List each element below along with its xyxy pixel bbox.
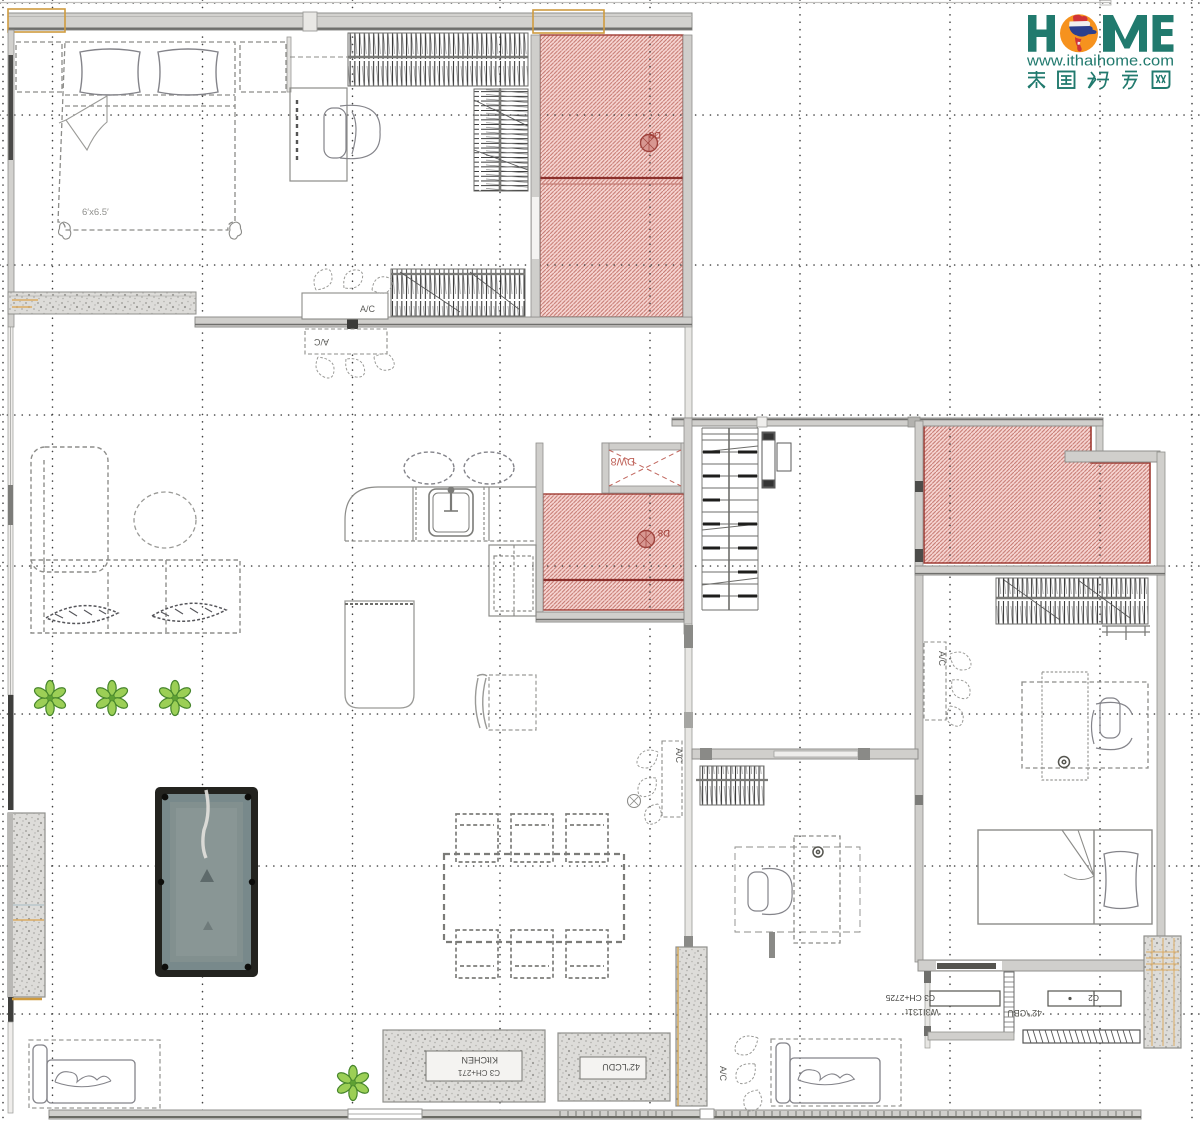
svg-text:C3 CH+2725: C3 CH+2725 bbox=[885, 993, 935, 1003]
svg-text:A/C: A/C bbox=[937, 651, 947, 667]
svg-text:A/C: A/C bbox=[313, 337, 329, 347]
svg-text:6′x6.5′: 6′x6.5′ bbox=[82, 207, 109, 218]
svg-text:C2: C2 bbox=[1088, 993, 1099, 1003]
svg-text:D8: D8 bbox=[649, 129, 661, 140]
svg-text:KItCHEN: KItCHEN bbox=[461, 1055, 498, 1065]
svg-text:A/C: A/C bbox=[718, 1066, 728, 1082]
svg-text:42"\CBU: 42"\CBU bbox=[1007, 1008, 1042, 1018]
svg-text:C3 CH+271: C3 CH+271 bbox=[457, 1068, 500, 1077]
svg-text:W3I131t: W3I131t bbox=[905, 1007, 939, 1017]
svg-text:DW8: DW8 bbox=[611, 455, 635, 467]
svg-text:A/C: A/C bbox=[674, 748, 684, 764]
svg-text:A/C: A/C bbox=[360, 304, 376, 314]
svg-text:www.ithaihome.com: www.ithaihome.com bbox=[1026, 54, 1174, 70]
svg-text:42"LCDU: 42"LCDU bbox=[602, 1062, 640, 1072]
svg-text:D8: D8 bbox=[658, 527, 670, 538]
